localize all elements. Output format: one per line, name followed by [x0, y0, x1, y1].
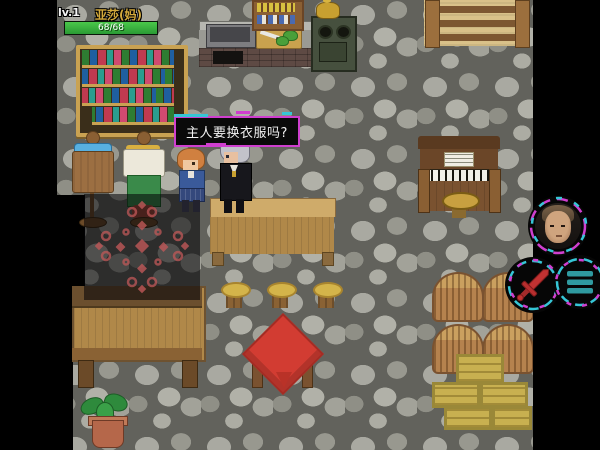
wood-pile [432, 272, 484, 322]
glitch-accent [206, 143, 226, 145]
staircase [424, 0, 530, 46]
stove [311, 16, 357, 72]
jar-row [257, 15, 295, 24]
piano-stool [442, 192, 480, 210]
bed-leg [182, 360, 198, 388]
letterbox-left [0, 0, 57, 450]
stool [267, 282, 297, 298]
butler-npc [216, 136, 254, 216]
oven-opening [213, 51, 243, 64]
player-level: lv.1 [58, 6, 80, 19]
butler-leg [224, 199, 232, 213]
stair-step [436, 6, 518, 13]
bed-leg [78, 360, 94, 388]
maid-npc [174, 146, 208, 216]
book-row [82, 69, 174, 87]
stool [221, 282, 251, 298]
stair-step [436, 34, 518, 41]
glitch-accent [236, 111, 250, 114]
table-leg [212, 252, 224, 266]
glitch-accent [174, 114, 208, 117]
maid-eye [192, 162, 195, 165]
portrait-eye [561, 225, 565, 227]
bottle-row [257, 3, 295, 12]
crate [432, 382, 480, 408]
glitch-accent [282, 112, 292, 115]
speech-bubble: 主人要换衣服吗? [174, 116, 300, 147]
crate [456, 354, 504, 384]
potted-plant [92, 420, 124, 448]
portrait-face [545, 211, 571, 243]
speech-bubble-text: 主人要换衣服吗? [186, 122, 288, 141]
map-edge-shadow [57, 290, 73, 450]
book-row [82, 50, 174, 68]
portrait-eye [550, 225, 554, 227]
book-row [82, 88, 174, 106]
bookshelf [76, 45, 188, 137]
bed-rail [72, 348, 202, 360]
burner [318, 25, 333, 39]
crate [480, 382, 528, 408]
sheet-music [444, 152, 474, 167]
stove-door [319, 42, 347, 62]
hp-bar-text: 68/68 [65, 22, 157, 34]
butler-tie [232, 171, 236, 177]
kettle [316, 2, 340, 19]
tablecloth-point [276, 372, 292, 388]
burner [336, 25, 351, 39]
stair-step [436, 20, 518, 27]
maid-leg [182, 200, 189, 212]
stair-post [425, 0, 440, 48]
menu-button[interactable] [552, 254, 600, 310]
book-row [92, 107, 174, 125]
crate [492, 406, 532, 430]
wall-shelf [252, 0, 304, 31]
butler-eye [226, 155, 229, 158]
maid-leg [193, 200, 200, 212]
butler-leg [236, 199, 244, 213]
maid-collar [188, 171, 194, 178]
maid-face [183, 160, 198, 170]
long-table-front [210, 216, 334, 254]
hp-bar: 68/68 [64, 21, 158, 35]
player-portrait [535, 203, 581, 249]
tunic [72, 151, 114, 193]
menu-lines-icon [552, 254, 600, 310]
crate [444, 406, 492, 430]
table-leg [322, 252, 334, 266]
portrait-mouth [556, 235, 562, 237]
vegetables [276, 36, 289, 46]
white-shirt [123, 149, 165, 177]
avatar-button[interactable] [526, 194, 590, 258]
game-screen: 主人要换衣服吗? lv.1 亚莎(妈) 68/68 [0, 0, 600, 450]
sink-basin [210, 27, 250, 42]
stool [313, 282, 343, 298]
stair-post [515, 0, 530, 48]
